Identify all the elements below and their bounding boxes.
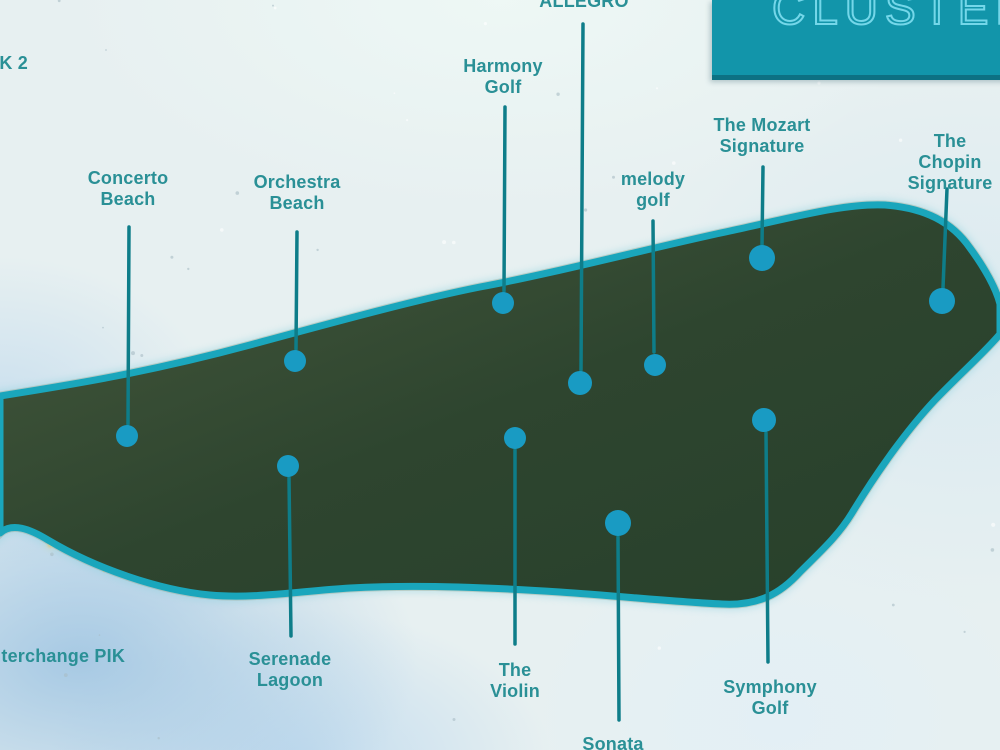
callout-line-sonata [618,537,619,720]
label-the-violin: The Violin [490,660,540,702]
label-concerto-beach: Concerto Beach [88,168,169,210]
callout-line-harmony-golf [504,107,505,291]
label-pik-2: PIK 2 [0,53,28,74]
label-interchange-pik: Interchange PIK [0,646,125,667]
marker-dot-the-mozart-signature [749,245,775,271]
label-serenade-lagoon: Serenade Lagoon [249,649,332,691]
label-harmony-golf: Harmony Golf [463,56,542,98]
label-melody-golf: melody golf [621,169,685,211]
cluster-title-box: CLUSTER [712,0,1000,80]
callout-line-the-mozart-signature [762,167,763,245]
marker-dot-symphony-golf [752,408,776,432]
label-the-mozart-signature: The Mozart Signature [713,115,810,157]
cluster-title: CLUSTER [772,0,1000,35]
marker-dot-concerto-beach [116,425,138,447]
callout-line-melody-golf [653,221,654,352]
label-symphony-golf: Symphony Golf [723,677,817,719]
marker-dot-serenade-lagoon [277,455,299,477]
marker-dot-the-chopin-signature [929,288,955,314]
coastline [0,205,1000,604]
callout-line-concerto-beach [128,227,129,424]
label-allegro: ALLEGRO [539,0,628,12]
callout-line-allegro [581,24,583,370]
masterplan-poster: PIK 2Concerto BeachOrchestra BeachHarmon… [0,0,1000,750]
marker-dot-melody-golf [644,354,666,376]
marker-dot-allegro [568,371,592,395]
marker-dot-orchestra-beach [284,350,306,372]
callout-line-symphony-golf [766,433,768,662]
masterplan-map [0,0,1000,750]
marker-dot-sonata [605,510,631,536]
label-sonata: Sonata [582,734,643,750]
label-the-chopin-signature: The Chopin Signature [908,131,993,194]
callout-line-orchestra-beach [296,232,297,349]
callout-line-serenade-lagoon [289,478,291,636]
label-orchestra-beach: Orchestra Beach [254,172,341,214]
marker-dot-the-violin [504,427,526,449]
marker-dot-harmony-golf [492,292,514,314]
